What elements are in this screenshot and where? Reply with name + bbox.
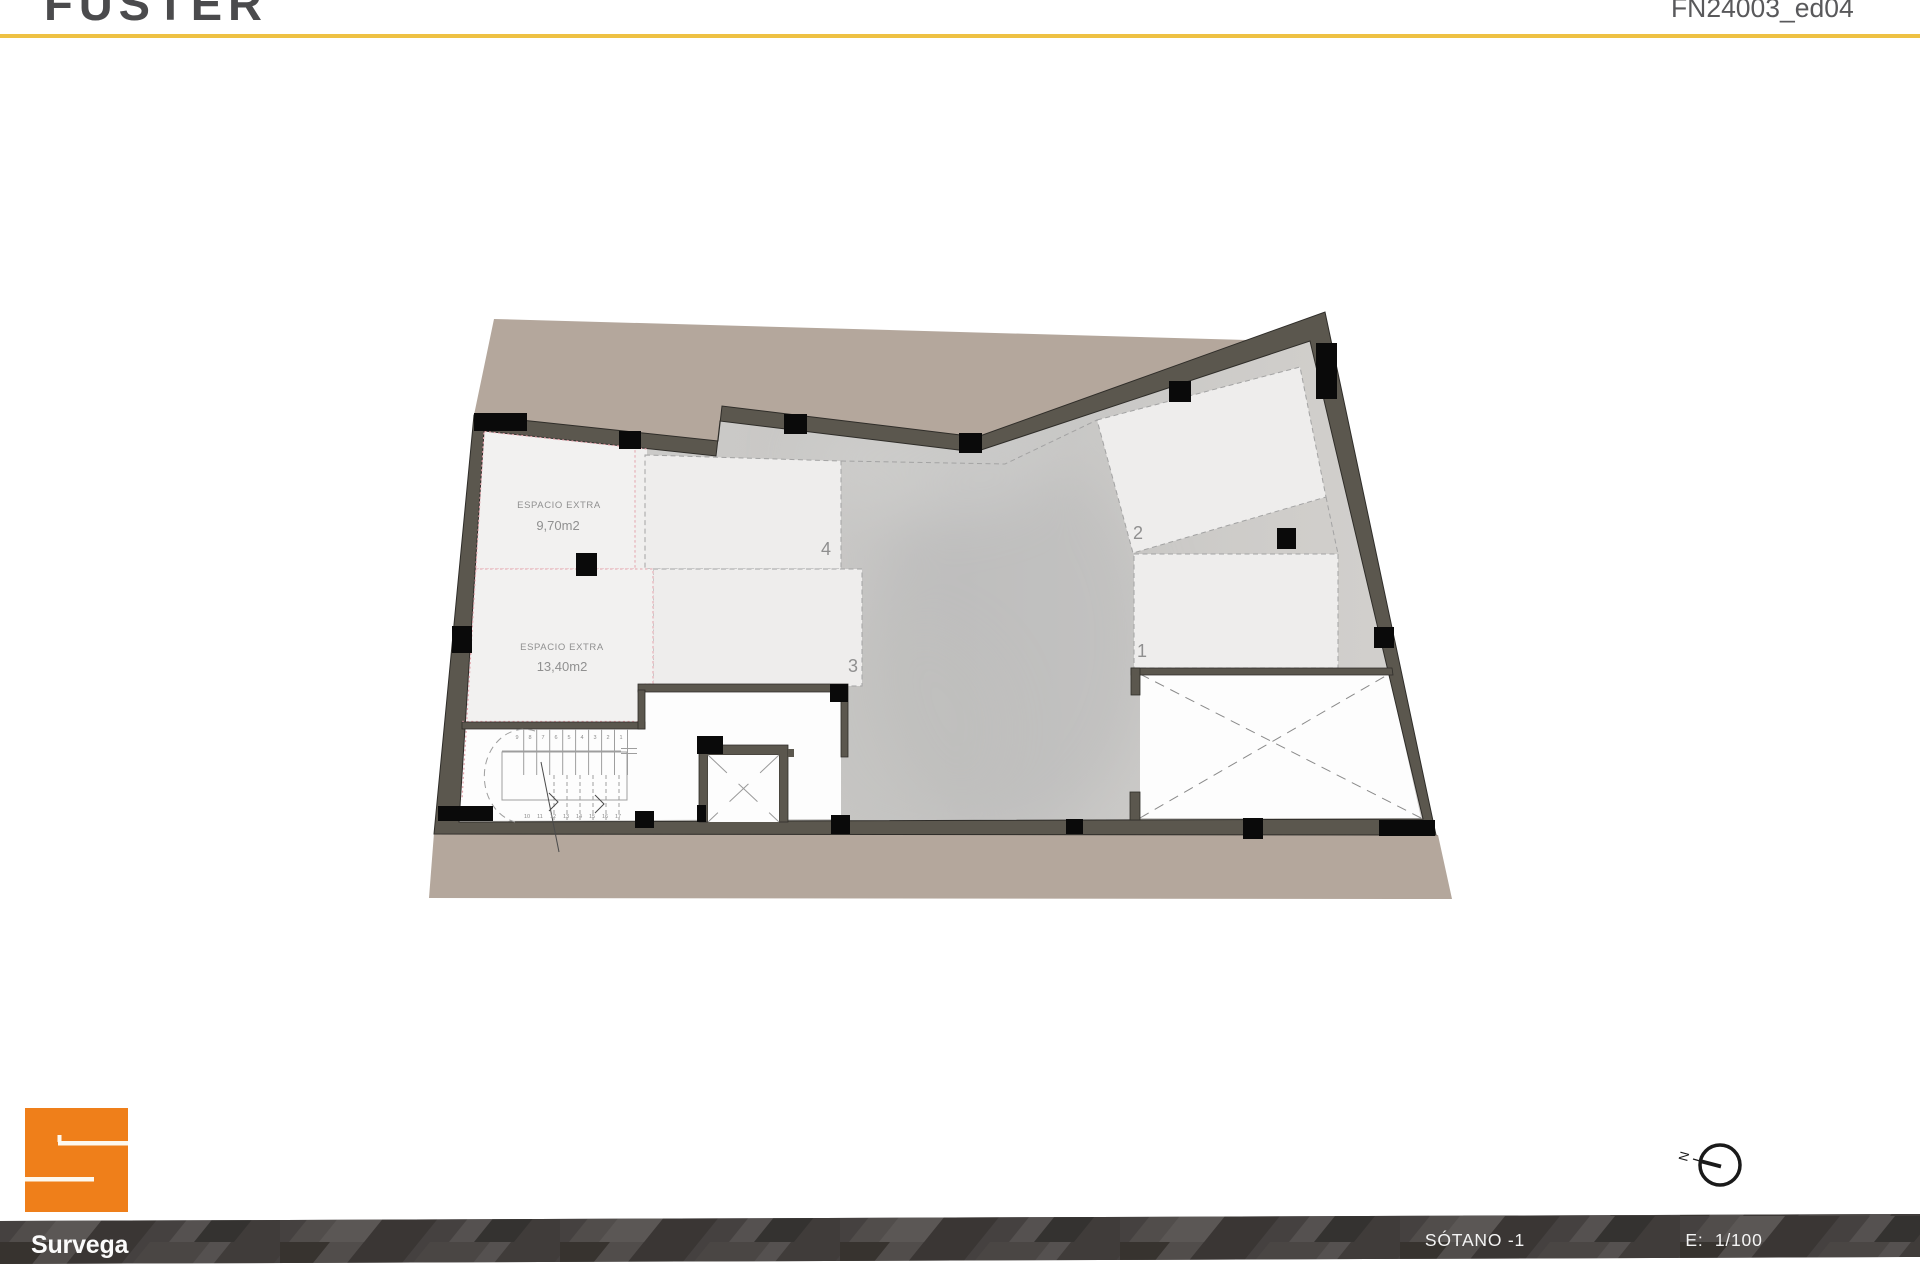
svg-text:17: 17 <box>615 814 621 820</box>
svg-text:9,70m2: 9,70m2 <box>536 518 579 533</box>
svg-text:10: 10 <box>524 814 530 820</box>
svg-text:2: 2 <box>606 735 609 741</box>
svg-text:9: 9 <box>515 735 518 741</box>
svg-text:N: N <box>1675 1150 1692 1163</box>
svg-text:3: 3 <box>848 656 858 676</box>
svg-text:7: 7 <box>541 735 544 741</box>
svg-text:16: 16 <box>602 814 608 820</box>
svg-text:15: 15 <box>589 814 595 820</box>
svg-text:ESPACIO EXTRA: ESPACIO EXTRA <box>520 642 604 653</box>
svg-text:Survega: Survega <box>31 1231 130 1259</box>
svg-text:1: 1 <box>1137 641 1147 661</box>
svg-text:6: 6 <box>554 735 557 741</box>
svg-text:SÓTANO -1: SÓTANO -1 <box>1425 1229 1525 1250</box>
svg-text:3: 3 <box>593 735 596 741</box>
svg-text:FUSTER: FUSTER <box>44 0 268 30</box>
svg-text:13: 13 <box>563 814 569 820</box>
svg-text:1: 1 <box>619 735 622 741</box>
svg-text:8: 8 <box>528 735 531 741</box>
svg-text:ESPACIO EXTRA: ESPACIO EXTRA <box>517 500 601 511</box>
svg-text:FN24003_ed04: FN24003_ed04 <box>1671 0 1854 23</box>
svg-text:E: 1/100: E: 1/100 <box>1685 1230 1762 1250</box>
svg-text:4: 4 <box>821 539 831 559</box>
svg-text:2: 2 <box>1133 523 1143 543</box>
svg-text:4: 4 <box>580 735 583 741</box>
svg-text:12: 12 <box>550 814 556 820</box>
svg-text:11: 11 <box>537 814 543 820</box>
svg-text:14: 14 <box>576 814 582 820</box>
svg-text:5: 5 <box>567 735 570 741</box>
svg-text:13,40m2: 13,40m2 <box>537 659 588 674</box>
